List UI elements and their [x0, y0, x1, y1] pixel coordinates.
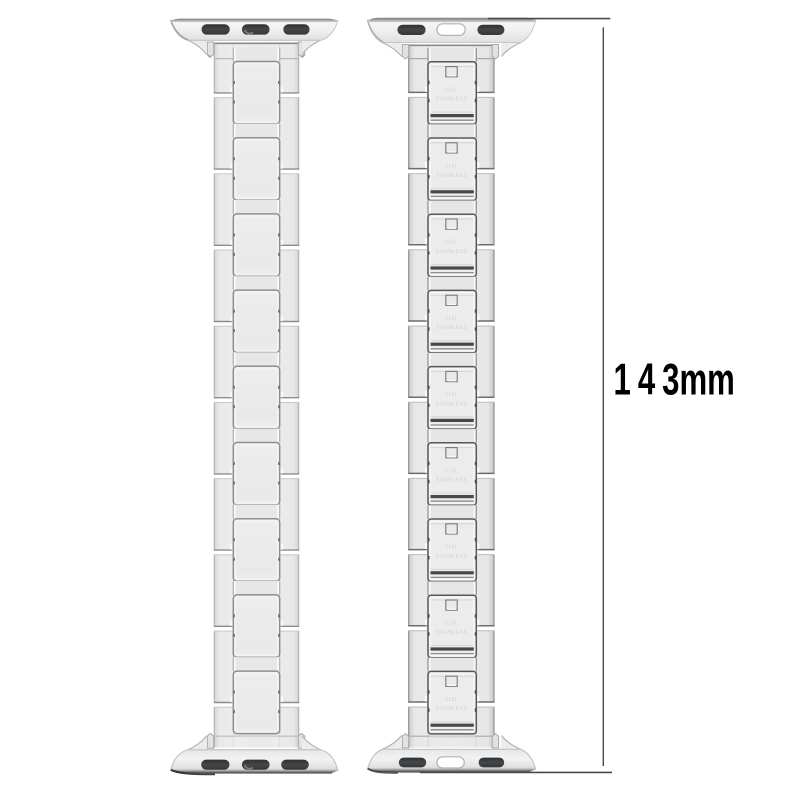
svg-text:143mm: 143mm [614, 355, 735, 405]
